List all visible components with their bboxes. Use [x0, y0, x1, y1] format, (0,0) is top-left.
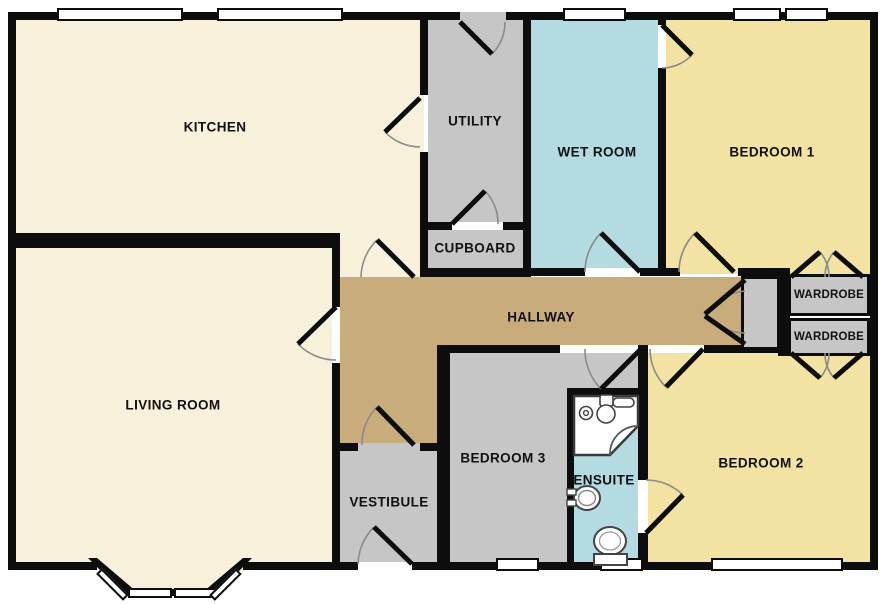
- leaf-utility-exterior-door: [460, 22, 492, 54]
- leaf-living-hallway-door: [298, 307, 336, 344]
- arc-wetroom-hallway-door: [585, 233, 601, 272]
- arc-bedroom2-hallway-door: [650, 349, 666, 387]
- shower-control-icon: [580, 407, 593, 420]
- leaf-hallend-cupboard-lower: [705, 316, 745, 344]
- sink-tap-icon: [567, 489, 576, 495]
- arc-utility-cupboard-door: [485, 191, 498, 224]
- toilet-cistern-icon: [594, 554, 627, 565]
- cupboard-label: CUPBOARD: [434, 241, 515, 256]
- leaf-bedroom1-hallway-door: [695, 233, 734, 272]
- vestibule-label: VESTIBULE: [349, 495, 428, 510]
- leaf-wardrobe-bottom-left: [791, 353, 820, 378]
- shower-tray-shelf-icon: [613, 398, 634, 407]
- arc-bedroom3-hallway-door: [585, 349, 601, 389]
- arc-wetroom-bedroom1-door: [662, 55, 692, 68]
- bedroom2-label: BEDROOM 2: [718, 456, 803, 471]
- arc-vestibule-exterior-door: [358, 527, 374, 564]
- leaf-kitchen-utility-door: [385, 98, 420, 132]
- shower-head-icon: [597, 405, 615, 423]
- leaf-wetroom-bedroom1-door: [662, 25, 692, 55]
- leaf-wardrobe-bottom-right: [834, 353, 863, 378]
- leaf-wardrobe-top-left: [791, 252, 820, 277]
- leaf-wetroom-hallway-door: [601, 233, 640, 272]
- leaf-bedroom3-hallway-door: [601, 349, 641, 389]
- living-room-label: LIVING ROOM: [125, 398, 220, 413]
- leaf-ensuite-bedroom2-door: [646, 495, 683, 533]
- ensuite-label: ENSUITE: [573, 473, 634, 488]
- bedroom3-label: BEDROOM 3: [460, 451, 545, 466]
- leaf-vestibule-hallway-door: [377, 407, 414, 445]
- arc-kitchen-utility-door: [385, 132, 420, 147]
- bedroom1-label: BEDROOM 1: [729, 145, 814, 160]
- arc-utility-exterior-door: [492, 22, 505, 54]
- leaf-wardrobe-top-right: [834, 252, 863, 277]
- leaf-kitchen-hallway-door: [377, 240, 414, 277]
- wet-room-label: WET ROOM: [558, 145, 637, 160]
- arc-ensuite-bedroom2-door: [646, 480, 683, 495]
- arc-kitchen-hallway-door: [361, 240, 377, 277]
- door-swing-arcs: [298, 22, 834, 564]
- leaf-hallend-cupboard-upper: [705, 280, 745, 314]
- sink-tap2-icon: [567, 500, 576, 506]
- leaf-bedroom2-hallway-door: [666, 349, 703, 387]
- arc-living-hallway-door: [298, 344, 336, 360]
- leaf-utility-cupboard-door: [452, 191, 485, 224]
- leaf-vestibule-exterior-door: [374, 527, 412, 564]
- hallway-label: HALLWAY: [507, 310, 575, 325]
- arc-bedroom1-hallway-door: [679, 233, 695, 272]
- doors-and-fixtures-overlay: [0, 0, 886, 604]
- arc-vestibule-hallway-door: [362, 407, 377, 445]
- floor-plan: KITCHEN UTILITY WET ROOM BEDROOM 1 CUPBO…: [0, 0, 886, 604]
- wardrobe-bottom-label: WARDROBE: [794, 331, 864, 343]
- utility-label: UTILITY: [448, 114, 502, 129]
- toilet-bowl-icon: [594, 527, 626, 555]
- kitchen-label: KITCHEN: [184, 120, 247, 135]
- wardrobe-top-label: WARDROBE: [794, 289, 864, 301]
